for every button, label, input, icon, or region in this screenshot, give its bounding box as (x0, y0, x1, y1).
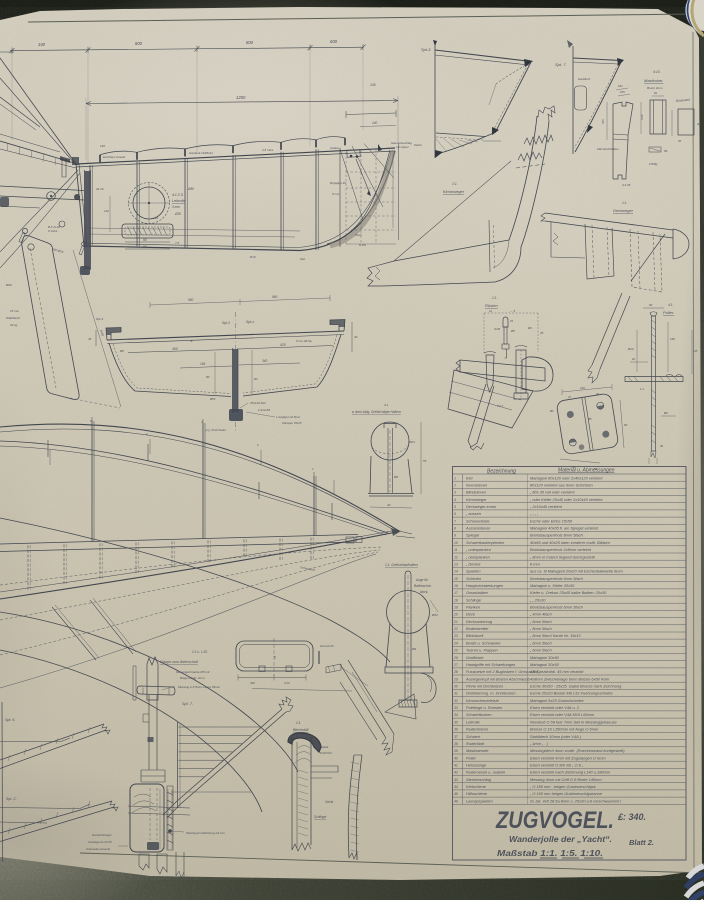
svg-text:80: 80 (206, 375, 210, 379)
svg-text:Eisen verzinkt oder V4A M15: Eisen verzinkt oder V4A M15 L65mm (530, 712, 595, 717)
svg-text:₤: 340.: ₤: 340. (617, 812, 646, 822)
svg-text:Ø65: Ø65 (209, 397, 216, 401)
svg-text:Ø8: Ø8 (393, 475, 398, 479)
svg-text:Tueren u. Klappen: Tueren u. Klappen (466, 648, 498, 653)
svg-text:1:1.: 1:1. (492, 296, 497, 300)
svg-text:41: 41 (454, 764, 458, 768)
svg-text:4:10.: 4:10. (653, 70, 661, 74)
svg-text:Kiefer: Kiefer (414, 143, 423, 147)
svg-text:800: 800 (246, 40, 254, 45)
svg-text:8 mm: 8 mm (332, 192, 340, 196)
svg-text:Material u. Abmessungen: Material u. Abmessungen (558, 468, 615, 474)
svg-text:400: 400 (172, 347, 178, 351)
svg-text:20: 20 (453, 613, 458, 617)
svg-text:Kiel: Kiel (466, 475, 473, 480)
svg-text:Ø10: Ø10 (627, 347, 634, 351)
svg-text:Anodegummi Kl.55: Anodegummi Kl.55 (87, 840, 112, 844)
svg-text:Bodenbretter: Bodenbretter (466, 626, 489, 631)
svg-text:Mahagoni 30x50: Mahagoni 30x50 (530, 655, 560, 660)
svg-text:Schwertbolzen: Schwertbolzen (466, 712, 492, 717)
svg-text:Bootsbausperrholz 8mm 5fach: Bootsbausperrholz 8mm 5fach (530, 533, 583, 538)
svg-text:24: 24 (453, 641, 458, 645)
svg-text:40x65 und 40x25 oben vorderer: 40x65 und 40x25 oben vorderer rostfr. Bi… (530, 540, 610, 545)
svg-text:35: 35 (678, 139, 682, 143)
svg-text:Kimmweger: Kimmweger (443, 189, 465, 194)
svg-text:Eisen verzinkt nach Zeichnung: Eisen verzinkt nach Zeichnung L140 u.180… (530, 770, 611, 775)
svg-text:Ruderoesen u. Gabeln: Ruderoesen u. Gabeln (466, 770, 505, 775)
svg-text:„ O 180 mm . beigen Gu: „ O 180 mm . beigen Gusteuerschlgsk. (529, 784, 597, 789)
svg-text:33: 33 (454, 706, 458, 710)
svg-text:1/5/8g: 1/5/8g (649, 162, 658, 166)
svg-text:Maßstab 1:1. 1:5. 1:10.: Maßstab 1:1. 1:5. 1:10. (497, 848, 603, 858)
svg-text:27: 27 (453, 663, 458, 667)
svg-text:86: 86 (664, 149, 668, 153)
svg-text:„ „ „ „: „ „ „ „ (529, 511, 539, 516)
svg-text:7.6: 7.6 (175, 241, 180, 245)
svg-text:Ø8: Ø8 (510, 329, 515, 333)
svg-text:Sohlsten: Sohlsten (466, 576, 481, 581)
svg-text:75: 75 (273, 655, 277, 659)
svg-text:4: 4 (454, 498, 456, 502)
svg-text:Spt.3: Spt.3 (222, 321, 230, 325)
svg-text:160: 160 (670, 337, 675, 341)
svg-text:Kiel: Kiel (300, 257, 305, 261)
svg-text:ZUGVOGEL.: ZUGVOGEL. (495, 807, 614, 834)
svg-text:Handgriffe mit Schaeftungen: Handgriffe mit Schaeftungen (466, 662, 515, 667)
svg-text:38: 38 (454, 742, 458, 746)
svg-text:Stahlblech 10mm (oder V4A ): Stahlblech 10mm (oder V4A ) (530, 734, 582, 739)
svg-text:Pinne mit Drehbolzen: Pinne mit Drehbolzen (466, 684, 503, 689)
svg-text:Blindsteven: Blindsteven (466, 490, 486, 495)
svg-text:40: 40 (697, 122, 701, 126)
svg-text:„ 2x10x45 verleimt: „ 2x10x45 verleimt (529, 504, 563, 509)
svg-text:Deckweger innen: Deckweger innen (466, 504, 496, 509)
svg-text:Spt. 6.: Spt. 6. (5, 718, 15, 722)
svg-text:Mahagoni 40x65 fl. am Spiege: Mahagoni 40x65 fl. am Spiegel verleimt (530, 526, 599, 531)
svg-text:42 kg: 42 kg (10, 323, 18, 327)
svg-text:Greifleiste: Greifleiste (466, 655, 484, 660)
svg-text:11: 11 (454, 548, 458, 552)
svg-text:Gardseil 110/8x11: Gardseil 110/8x11 (189, 151, 213, 155)
svg-text:Mannlochbalken: Mannlochbalken (597, 147, 619, 151)
svg-text:82: 82 (654, 91, 658, 95)
svg-text:31: 31 (454, 692, 458, 696)
svg-text:Puettinge u. Ruesten: Puettinge u. Ruesten (466, 705, 502, 710)
svg-text:Riegel Abdg. 4mm: Riegel Abdg. 4mm (180, 676, 205, 680)
svg-text:Mahagoni u. Kiefer 20x30: Mahagoni u. Kiefer 20x30 (530, 583, 575, 588)
svg-text:R=6: R=6 (250, 255, 256, 259)
svg-text:„ 6mm 5fach: „ 6mm 5fach (529, 648, 552, 653)
svg-text:„ 6mm 5fach: „ 6mm 5fach (529, 619, 552, 624)
svg-text:„ aussen: „ aussen (465, 511, 481, 516)
svg-text:37: 37 (454, 735, 458, 739)
svg-text:2x Jat. 4x5 28.5a 8mm u. 25x: 2x Jat. 4x5 28.5a 8mm u. 25x30 a-6 versc… (529, 798, 622, 803)
svg-text:Decksunterzug: Decksunterzug (466, 619, 493, 624)
svg-text:Mahagoni 5x25 Gummis: Mahagoni 5x25 Gummischeibe (530, 698, 584, 703)
svg-text:Weichgummidichtung ø3 mm: Weichgummidichtung ø3 mm (186, 831, 225, 835)
svg-text:Deckweger: Deckweger (613, 208, 634, 213)
svg-text:Ballenschot-: Ballenschot- (414, 584, 432, 588)
svg-text:8 mm AB Sp.: 8 mm AB Sp. (296, 339, 313, 343)
svg-text:45: 45 (540, 331, 544, 335)
svg-text:340: 340 (262, 359, 268, 363)
svg-text:110: 110 (104, 209, 109, 213)
svg-text:Laengsspanten: Laengsspanten (466, 798, 493, 803)
svg-text:Handloch: Handloch (578, 77, 591, 81)
svg-text:Ø4: Ø4 (527, 326, 532, 330)
svg-text:44: 44 (454, 785, 458, 789)
svg-text:Esche 25x20 Bolzen M6 L52 Fueh: Esche 25x20 Bolzen M6 L52 Fuehrungsschei… (530, 691, 613, 696)
svg-text:Klampen 25x25: Klampen 25x25 (282, 421, 302, 425)
svg-text:34: 34 (454, 713, 458, 717)
svg-text:Kimmscheuerleiste: Kimmscheuerleiste (466, 698, 500, 703)
svg-text:25: 25 (567, 395, 571, 399)
svg-text:„ 8mm 5fach Kante Nr.: „ 8mm 5fach Kante Nr. 15x12 (529, 633, 582, 638)
svg-text:mit nippel: mit nippel (396, 145, 409, 149)
svg-text:Sternbeschlag: Sternbeschlag (466, 777, 492, 782)
svg-text:Leitrolle: Leitrolle (466, 719, 480, 724)
svg-text:Brunn 4mm: Brunn 4mm (647, 86, 663, 90)
svg-text:1:1.: 1:1. (622, 201, 627, 205)
svg-text:Blechstüll: Blechstüll (293, 728, 309, 732)
svg-text:80: 80 (624, 423, 628, 427)
svg-text:4 b2: 4 b2 (284, 681, 290, 685)
svg-text:R.30l.: R.30l. (359, 243, 367, 247)
svg-text:1: 1 (454, 476, 456, 480)
svg-text:Ruderblatt: Ruderblatt (466, 741, 485, 746)
svg-text:Rundschkriegel: Rundschkriegel (92, 833, 112, 837)
svg-text:ø 4mm Abtg. Greifvichtigte Hal: ø 4mm Abtg. Greifvichtigte Haltern (352, 410, 401, 414)
svg-text:30: 30 (454, 685, 458, 689)
svg-text:25: 25 (453, 649, 458, 653)
svg-text:Spt-x.: Spt-x. (246, 320, 255, 324)
svg-text:6: 6 (454, 512, 456, 516)
svg-text:2: 2 (453, 484, 456, 488)
svg-text:18: 18 (454, 598, 458, 602)
svg-text:4:1.: 4:1. (384, 403, 389, 407)
svg-text:Planken: Planken (466, 605, 480, 610)
svg-text:1:1.: 1:1. (452, 182, 458, 186)
svg-text:15 mm: 15 mm (10, 309, 20, 313)
svg-text:43: 43 (454, 778, 458, 782)
svg-text:600: 600 (330, 39, 338, 44)
svg-text:Messingschraube M5 mit: Messingschraube M5 mit (176, 670, 210, 674)
svg-text:Messing ø 8.9mm Länge 59mm: Messing ø 8.9mm Länge 59mm (178, 685, 221, 689)
svg-text:42: 42 (454, 771, 458, 775)
svg-text:21: 21 (453, 620, 458, 624)
svg-text:Auge für: Auge für (415, 578, 429, 582)
svg-text:12: 12 (489, 309, 493, 313)
svg-text:aus ca. 6l Mahagoni 20x20 mit: aus ca. 6l Mahagoni 20x20 mit Eschenbalk… (530, 569, 624, 574)
svg-text:960: 960 (272, 295, 278, 299)
svg-text:„ 4mm 4fach: „ 4mm 4fach (529, 612, 552, 617)
svg-text:Schwert: Schwert (466, 734, 481, 739)
svg-text:55: 55 (423, 459, 427, 463)
svg-text:„ oberplanken: „ oberplanken (465, 554, 490, 559)
svg-text:Ø30: Ø30 (174, 212, 181, 216)
svg-text:80x120 verleimt aus 6mm Schic: 80x120 verleimt aus 6mm Schichten (530, 483, 593, 488)
svg-text:46: 46 (454, 799, 458, 803)
svg-text:35: 35 (454, 720, 458, 724)
svg-text:17: 17 (454, 591, 458, 595)
svg-text:7x17: 7x17 (497, 404, 504, 408)
svg-text:Ruderbolzen: Ruderbolzen (466, 727, 488, 732)
svg-text:Esche oder Eiche 15x50: Esche oder Eiche 15x50 (530, 518, 573, 523)
svg-text:Heisszange: Heisszange (466, 763, 487, 768)
svg-text:7: 7 (454, 519, 456, 523)
svg-text:1200: 1200 (236, 95, 246, 100)
svg-text:Schlinge: Schlinge (466, 597, 482, 602)
svg-text:2.412-B1: 2.412-B1 (257, 408, 271, 412)
svg-text:„ 8mm in Falzen liegend d: „ 8mm in Falzen liegend durchgestellt (529, 554, 596, 559)
svg-text:Spt.3: Spt.3 (96, 317, 103, 321)
svg-text:10: 10 (454, 541, 458, 545)
svg-text:Aussensteven: Aussensteven (465, 526, 490, 531)
svg-text:„ 6mm 5fach: „ 6mm 5fach (529, 640, 552, 645)
svg-text:Spt. C.: Spt. C. (6, 797, 17, 801)
svg-text:165: 165 (620, 90, 625, 94)
svg-text:1:1 u. 1:10.: 1:1 u. 1:10. (192, 650, 208, 654)
svg-text:Blickstuell: Blickstuell (466, 633, 483, 638)
svg-text:Fusstuetze mit 2 Bugbolzen f.: Fusstuetze mit 2 Bugbolzen f. Grossschot (466, 669, 539, 674)
svg-text:„ unterplanken: „ unterplanken (465, 547, 491, 552)
svg-text:Ø9: Ø9 (411, 647, 416, 651)
svg-text:Leitrolle: Leitrolle (172, 199, 185, 203)
svg-text:8 1/4x1: 8 1/4x1 (48, 229, 58, 233)
svg-text:45: 45 (88, 337, 92, 341)
svg-text:60: 60 (649, 303, 653, 307)
svg-text:14: 14 (454, 570, 458, 574)
svg-text:19: 19 (454, 606, 458, 610)
svg-text:332: 332 (250, 681, 255, 685)
svg-text:Kiefer u. Orekon 25x45 halbe B: Kiefer u. Orekon 25x45 halbe Balken: 20x… (530, 590, 607, 595)
svg-text:Bootsbausperrholz 6mm 5fach: Bootsbausperrholz 6mm 5fach (530, 605, 583, 610)
svg-text:Bootsbausperrholz 6mm 5fach: Bootsbausperrholz 6mm 5fach (530, 576, 583, 581)
svg-text:80: 80 (254, 377, 258, 381)
svg-text:13: 13 (454, 562, 458, 566)
svg-text:Ø8: Ø8 (587, 417, 592, 421)
svg-text:block.: block. (420, 590, 428, 594)
svg-text:Spt. 7.: Spt. 7. (182, 702, 193, 706)
svg-text:Kimmweger: Kimmweger (466, 497, 487, 502)
svg-text:Spiegel: Spiegel (466, 533, 479, 538)
svg-text:4.4.35: 4.4.35 (622, 183, 631, 187)
svg-text:29: 29 (453, 677, 458, 681)
svg-text:Kielschiene: Kielschiene (466, 784, 487, 789)
svg-text:Ø54: Ø54 (431, 613, 438, 617)
svg-text:Eisen verzinkt oder V4A u. 2.: Eisen verzinkt oder V4A u. 2. (530, 705, 580, 710)
svg-text:Anlass: Anlass (329, 146, 340, 150)
svg-text:Profil 8x3: Profil 8x3 (320, 751, 332, 755)
svg-text:12: 12 (454, 555, 458, 559)
svg-text:„ 8mm 5fach: „ 8mm 5fach (529, 626, 552, 631)
svg-text:420: 420 (280, 343, 286, 347)
svg-text:20: 20 (631, 357, 636, 361)
svg-text:Spt. 7.: Spt. 7. (555, 62, 567, 67)
svg-text:1:1: 1:1 (640, 387, 644, 391)
svg-text:Bronze O 10 L350mm mit Auge O: Bronze O 10 L350mm mit Auge O 6mm (530, 727, 599, 732)
svg-text:165: 165 (200, 362, 206, 366)
svg-text:Blatt 2.: Blatt 2. (629, 838, 654, 847)
svg-text:Omasbalken: Omasbalken (466, 590, 488, 595)
svg-text:Ø8: Ø8 (119, 349, 124, 353)
svg-text:40: 40 (387, 503, 391, 507)
svg-text:AB Spezdrahtl. 45 mm verzinkt: AB Spezdrahtl. 45 mm verzinkt (529, 669, 584, 674)
svg-text:„ 80x 30 voll oder verleim: „ 80x 30 voll oder verleimt (529, 490, 575, 495)
svg-text:Auslegerkopf mit Bolzen Abschr: Auslegerkopf mit Bolzen Abschraubb. (465, 676, 531, 681)
svg-text:1:1. Greifschlaufhaltern: 1:1. Greifschlaufhaltern (385, 563, 418, 567)
svg-text:Esche 30x50 - 25x25. Gabel Bro: Esche 30x50 - 25x25. Gabel Bronze nach Z… (530, 684, 622, 689)
svg-text:Messing 4mm mit Griff O 8 B: Messing 4mm mit Griff O 8 Breite 140mm (530, 777, 602, 782)
svg-text:545: 545 (601, 119, 605, 124)
svg-text:8: 8 (454, 527, 456, 531)
svg-text:960: 960 (188, 298, 194, 302)
svg-text:96: 96 (143, 245, 147, 249)
svg-text:2: 2 (256, 443, 259, 447)
svg-text:Bezeichnung: Bezeichnung (487, 469, 516, 475)
svg-text:Eisen verzinkt 4mm mit Zugst: Eisen verzinkt 4mm mit Zugstangen O 6mm (530, 755, 606, 760)
svg-text:Ø24: Ø24 (408, 440, 415, 444)
svg-text:Mahagoni 30x50: Mahagoni 30x50 (530, 662, 560, 667)
svg-text:240: 240 (579, 386, 585, 390)
svg-text:Rüsten: Rüsten (485, 303, 498, 308)
svg-text:23: 23 (453, 634, 458, 638)
svg-text:140: 140 (372, 121, 378, 125)
svg-text:140: 140 (370, 83, 376, 87)
svg-text:15: 15 (454, 577, 458, 581)
svg-text:4:1 Z-S: 4:1 Z-S (172, 193, 184, 197)
svg-text:45: 45 (454, 792, 458, 796)
svg-text:L Gegligst mit 8mm: L Gegligst mit 8mm (276, 415, 301, 419)
svg-text:25x120 Kiel: 25x120 Kiel (249, 401, 266, 405)
svg-text:Unterseite versenkt: Unterseite versenkt (86, 847, 110, 851)
svg-text:Messingblech 4mm vorde. (Rueck: Messingblech 4mm vorde. (Rueckenwand kon… (530, 748, 625, 753)
svg-text:„ oder Kiefer 25x40 oder: „ oder Kiefer 25x40 oder 2x10x40 verleim… (529, 497, 603, 502)
svg-text:Spt.3.: Spt.3. (421, 47, 431, 52)
svg-text:Oecik: Oecik (325, 800, 334, 804)
svg-text:8 mm: 8 mm (530, 561, 540, 566)
svg-text:182: 182 (618, 84, 623, 88)
svg-text:44.16: 44.16 (96, 187, 104, 191)
svg-text:32: 32 (454, 699, 458, 703)
svg-text:Poller.: Poller. (663, 310, 674, 315)
svg-text:„4 g“ Klotz Kiefer: „4 g“ Klotz Kiefer (204, 428, 227, 432)
svg-text:„ Deckel: „ Deckel (465, 561, 480, 566)
svg-text:4:1.: 4:1. (668, 303, 673, 307)
svg-text:Ø50: Ø50 (187, 187, 194, 191)
svg-text:Mahagoni 80x120 oder 2x40x: Mahagoni 80x120 oder 2x40x120 verleimt (530, 475, 603, 480)
svg-text:Dirkplatt: Dirkplatt (318, 745, 328, 749)
svg-text:36: 36 (454, 728, 458, 732)
svg-text:Scheuerleiste: Scheuerleiste (466, 518, 490, 523)
svg-text:25: 25 (509, 319, 514, 323)
svg-text:50: 50 (572, 465, 576, 469)
svg-text:Innensteven: Innensteven (466, 483, 487, 488)
svg-text:65: 65 (694, 349, 698, 353)
svg-text:Stahlblech: Stahlblech (6, 316, 20, 320)
svg-text:1:1.: 1:1. (296, 721, 301, 725)
svg-text:22: 22 (453, 627, 458, 631)
svg-text:Klappe zum Ablerschott: Klappe zum Ablerschott (160, 660, 199, 664)
svg-text:Borde u. Schraenke: Borde u. Schraenke (466, 640, 501, 645)
svg-text:4.30: 4.30 (640, 114, 644, 120)
svg-text:Hechtere Ansatz: Hechtere Ansatz (103, 155, 126, 159)
svg-text:3 mm: 3 mm (172, 205, 180, 209)
svg-text:16: 16 (454, 584, 458, 588)
svg-text:90: 90 (143, 238, 147, 242)
svg-text:Mastbaender: Mastbaender (466, 748, 489, 753)
svg-text:Eisen verzinkt O 8/6 mit „: Eisen verzinkt O 8/6 mit „ O 8 „ (530, 763, 584, 768)
svg-text:„ „ 20x30: „ „ 20x30 (529, 597, 546, 602)
svg-text:4 8 mlos: 4 8 mlos (262, 148, 274, 152)
svg-text:5: 5 (454, 505, 456, 509)
svg-text:Hilfsschiene: Hilfsschiene (466, 791, 488, 796)
svg-text:Ø5: Ø5 (549, 409, 554, 413)
svg-text:3x35: 3x35 (494, 327, 501, 331)
svg-text:↔ 8: ↔ 8 (510, 309, 516, 313)
svg-text:Ø20: Ø20 (5, 283, 12, 287)
svg-text:Hauptverstaerkungen: Hauptverstaerkungen (466, 583, 503, 588)
svg-text:Dirgappe 40,: Dirgappe 40, (330, 181, 347, 185)
svg-text:340: 340 (38, 42, 46, 47)
svg-text:Ø8: Ø8 (663, 411, 668, 415)
svg-text:28: 28 (453, 670, 458, 674)
svg-text:26: 26 (453, 656, 458, 660)
svg-text:4x8mm Zwischenlage 6mm Bolzen: 4x8mm Zwischenlage 6mm Bolzen 6x60 Rohr (530, 676, 610, 681)
svg-text:800: 800 (135, 41, 143, 46)
svg-text:Schlinge: Schlinge (314, 815, 326, 819)
svg-text:140: 140 (100, 144, 105, 148)
svg-text:40: 40 (354, 335, 358, 339)
svg-text:Novotext O 59 fuer 7mm Seil i: Novotext O 59 fuer 7mm Seil in Messingge… (530, 719, 618, 724)
svg-text:Bootsbausperrholz 2x8mm verle: Bootsbausperrholz 2x8mm verleimt (530, 547, 592, 552)
svg-text:Deck: Deck (466, 612, 476, 617)
svg-text:3: 3 (454, 491, 456, 495)
svg-text:9: 9 (454, 534, 456, 538)
svg-text:Schwertkastenpfosten: Schwertkastenpfosten (466, 540, 504, 545)
svg-text:Spanten: Spanten (466, 569, 481, 574)
svg-text:„ 4mm „ . ): „ 4mm „ . ) (529, 741, 549, 746)
svg-text:„ O 150 mm beigen Gusteu: „ O 150 mm beigen Gusteuerschlgskanne (529, 791, 603, 796)
svg-text:Mastkoker.: Mastkoker. (644, 78, 663, 83)
svg-text:Poller: Poller (466, 755, 477, 760)
svg-text:40: 40 (454, 756, 458, 760)
svg-text:Wanderjolle der „Yacht“.: Wanderjolle der „Yacht“. (509, 835, 612, 844)
svg-text:39: 39 (454, 749, 458, 753)
svg-text:Drehklemmg. m. Drehbolzen: Drehklemmg. m. Drehbolzen (466, 691, 516, 696)
svg-text:Gummil.35: Gummil.35 (320, 644, 334, 648)
svg-text:30: 30 (660, 444, 664, 448)
svg-text:ø10: ø10 (153, 216, 159, 220)
